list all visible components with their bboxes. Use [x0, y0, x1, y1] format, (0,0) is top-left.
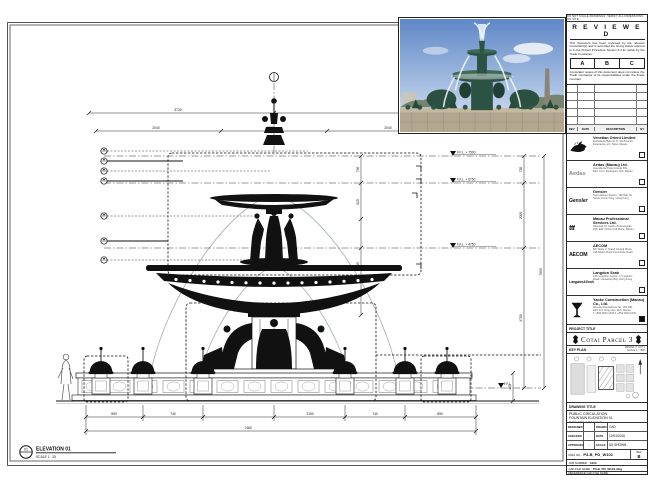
dim-label: 750 [519, 167, 523, 173]
review-status-boxes: A B C [570, 58, 645, 69]
consultant-checkbox [639, 206, 645, 212]
job-number-label: JOB NUMBER : [569, 461, 589, 465]
review-stamp-paragraph: Consultant review of this document does … [570, 71, 645, 82]
fountain-silhouette [146, 194, 402, 392]
sheet-note-text: DO NOT SCALE DRAWINGS. VERIFY ALL DIMENS… [567, 15, 647, 21]
dwg-number-row: DWG NO : P3-B_PD_W101 REV B [567, 450, 647, 460]
venetian-lion-logo-icon [569, 136, 591, 159]
title-block: DO NOT SCALE DRAWINGS. VERIFY ALL DIMENS… [566, 14, 648, 475]
scale-figure [58, 354, 73, 400]
status-box-b: B [595, 59, 620, 68]
revision-row [567, 109, 647, 117]
project-title: Cotai Parcel 3 [581, 336, 633, 344]
consultant-row-gensler: Gensler Gensler Two Harbour Square, 180 … [567, 188, 647, 215]
consultant-row-venetian: Venetian Orient Limited Estrada da Baía … [567, 134, 647, 161]
view-title: ELEVATION 01 [36, 447, 71, 453]
scale-value: AS SHOWN [608, 441, 647, 449]
dim-label: 890 [437, 412, 443, 416]
drawing-title-header: DRAWING TITLE [569, 405, 596, 409]
approved-value: - [584, 441, 595, 449]
reference-photo [398, 17, 566, 134]
contractor-name: Yaoke Construction (Macau) Co., Ltd. [593, 298, 645, 306]
consultant-address: Edif. Com. Rodrigues 12/F, Macau [593, 170, 645, 173]
description-col-header: DESCRIPTION [595, 127, 638, 131]
drawing-sheet-page: { "sheet_note": "DO NOT SCALE DRAWINGS. … [0, 0, 650, 488]
level-label: F.F.L. + 4750 [457, 242, 476, 246]
gensler-logo: Gensler [569, 198, 588, 204]
ornament-icon [636, 335, 641, 344]
consultant-address: 138 Shatin Rural Committee Road [593, 251, 645, 254]
consultant-address: Road, Causeway Bay, Hong Kong [593, 278, 645, 281]
drawing-title-section: DRAWING TITLE PUBLIC CIRCULATION FOUNTAI… [567, 403, 647, 423]
dim-label: 3730 [174, 108, 182, 112]
mps-logo: ttt [569, 225, 575, 232]
view-scale: SCALE 1 : 25 [36, 455, 56, 459]
level-marker-icon [450, 243, 456, 248]
revision-row [567, 93, 647, 101]
revision-table: REV DATE DESCRIPTION BY [567, 85, 647, 134]
dim-label: 2040 [152, 126, 160, 130]
dwg-no-value: P3-B_PD_W101 [583, 452, 613, 457]
drawn-label: DRAWN [595, 423, 608, 431]
dim-label: 2190 [306, 412, 314, 416]
dim-label: 520 [356, 199, 360, 205]
centerline-and-finial [262, 73, 286, 156]
reference-cad-file-label: REFERENCE CAD FILE NAME : [569, 472, 610, 474]
date-col-header: DATE [578, 127, 595, 131]
callout-bubble-icon [101, 148, 107, 263]
dim-label: 1730 [266, 126, 274, 130]
key-plan-map [569, 355, 645, 401]
revision-table-header: REV DATE DESCRIPTION BY [567, 125, 647, 133]
cad-file-value: P3-B_PD_W101.dwg [593, 467, 622, 471]
consultant-row-aecom: AECOM AECOM 8/F Tower 2, Grand Central P… [567, 242, 647, 269]
dim-label: 4750 [519, 314, 523, 322]
dim-label: 2000 [519, 212, 523, 220]
dim-label: 740 [372, 412, 378, 416]
dim-label: 2040 [384, 126, 392, 130]
scale-label: SCALE [595, 441, 608, 449]
designed-value: - [584, 423, 595, 431]
level-label: F.F.L. + 7500 [457, 150, 476, 154]
consultant-checkbox [639, 260, 645, 266]
consultant-name: Aedas (Macau) Ltd. [593, 163, 645, 167]
review-stamp: R E V I E W E D This document has been r… [567, 22, 647, 85]
consultant-name: Langdon Seah [593, 271, 645, 275]
consultant-checkbox [639, 152, 645, 158]
consultant-address: 263, Edif. China Civil Plaza, Macau [593, 228, 645, 231]
rev-value: B [637, 454, 640, 459]
approved-label: APPROVED [567, 441, 584, 449]
consultant-name: Macau Professional Services Ltd. [593, 217, 645, 225]
dim-label: 890 [111, 412, 117, 416]
project-title-header: PROJECT TITLE [569, 327, 595, 331]
review-stamp-paragraph: This document has been reviewed by the r… [570, 42, 645, 57]
date-label: DATE [595, 432, 608, 440]
view-number: 01 [24, 448, 28, 452]
elevation-title: 01 - ELEVATION 01 SCALE 1 : 25 [20, 446, 116, 459]
fountain-photo [400, 19, 564, 132]
consultant-address: Esperança, s/n, Taipa, Macau [593, 143, 645, 146]
status-box-a: A [571, 59, 596, 68]
contractor-row: Yaoke Construction (Macau) Co., Ltd. Rua… [567, 296, 647, 325]
key-plan-scale: SCALE 1 : 7500 [627, 349, 645, 352]
consultant-name: Venetian Orient Limited [593, 136, 645, 140]
ornament-icon [573, 335, 578, 344]
contractor-checkbox [639, 316, 645, 322]
dim-label: 7460 [244, 426, 252, 430]
dim-label: 740 [170, 412, 176, 416]
review-stamp-title: R E V I E W E D [570, 24, 645, 40]
project-title-section: PROJECT TITLE Cotai Parcel 3 [567, 325, 647, 346]
consultant-row-aedas: Aedas Aedas (Macau) Ltd. Avenida da Prai… [567, 161, 647, 188]
status-box-c: C [620, 59, 644, 68]
reference-cad-file-row: REFERENCE CAD FILE NAME : [567, 472, 647, 474]
drawn-value: CAD [608, 423, 647, 431]
designed-label: DESIGNED [567, 423, 584, 431]
dimension-bottom: 890 740 2190 740 890 7460 [84, 405, 478, 435]
date-value: 12/04/2016 [608, 432, 647, 440]
checked-label: CHECKED [567, 432, 584, 440]
dim-label: 450 [508, 384, 512, 390]
revision-row [567, 101, 647, 109]
consultant-name: Gensler [593, 190, 645, 194]
cad-file-label: CAD FILE NAME : [569, 467, 592, 471]
consultant-address: Street, Kwun Tong, Hong Kong [593, 197, 645, 200]
sheet-note: DO NOT SCALE DRAWINGS. VERIFY ALL DIMENS… [567, 15, 647, 22]
consultant-checkbox [639, 179, 645, 185]
consultant-checkbox [639, 233, 645, 239]
checked-value: - [584, 432, 595, 440]
dim-label: 7500 [539, 268, 543, 276]
revision-row [567, 117, 647, 125]
job-number-value: 3123 [590, 461, 597, 465]
pool-wall [56, 373, 539, 404]
consultant-row-mps: ttt Macau Professional Services Ltd. Ala… [567, 215, 647, 242]
yaoke-logo-icon [569, 298, 591, 323]
consultant-checkbox [639, 287, 645, 293]
by-col-header: BY [637, 127, 647, 131]
key-plan-header: KEY PLAN [569, 348, 586, 352]
level-marker-icon [450, 178, 456, 183]
contractor-address: T +853 2843 1026 F +853 2843 1030 [593, 312, 645, 315]
aecom-logo: AECOM [569, 252, 587, 258]
aedas-logo: Aedas [569, 171, 586, 177]
consultant-name: AECOM [593, 244, 645, 248]
match-line-marks [412, 166, 421, 269]
consultant-row-langdon-seah: Langdon&Seah Langdon Seah 21/F Leighton … [567, 269, 647, 296]
dimension-right: 750 2000 4750 7500 450 [508, 154, 546, 403]
revision-row [567, 85, 647, 93]
dwg-no-label: DWG NO : [569, 453, 582, 457]
key-plan-section: KEY PLAN PARCEL 3, LOT 2 SCALE 1 : 7500 [567, 346, 647, 403]
level-label: F.F.L. + 6750 [457, 177, 476, 181]
dim-label: 750 [356, 167, 360, 173]
rev-col-header: REV [567, 127, 578, 131]
approval-table: DESIGNED - DRAWN CAD CHECKED - DATE 12/0… [567, 423, 647, 450]
level-marker-icon [450, 151, 456, 156]
